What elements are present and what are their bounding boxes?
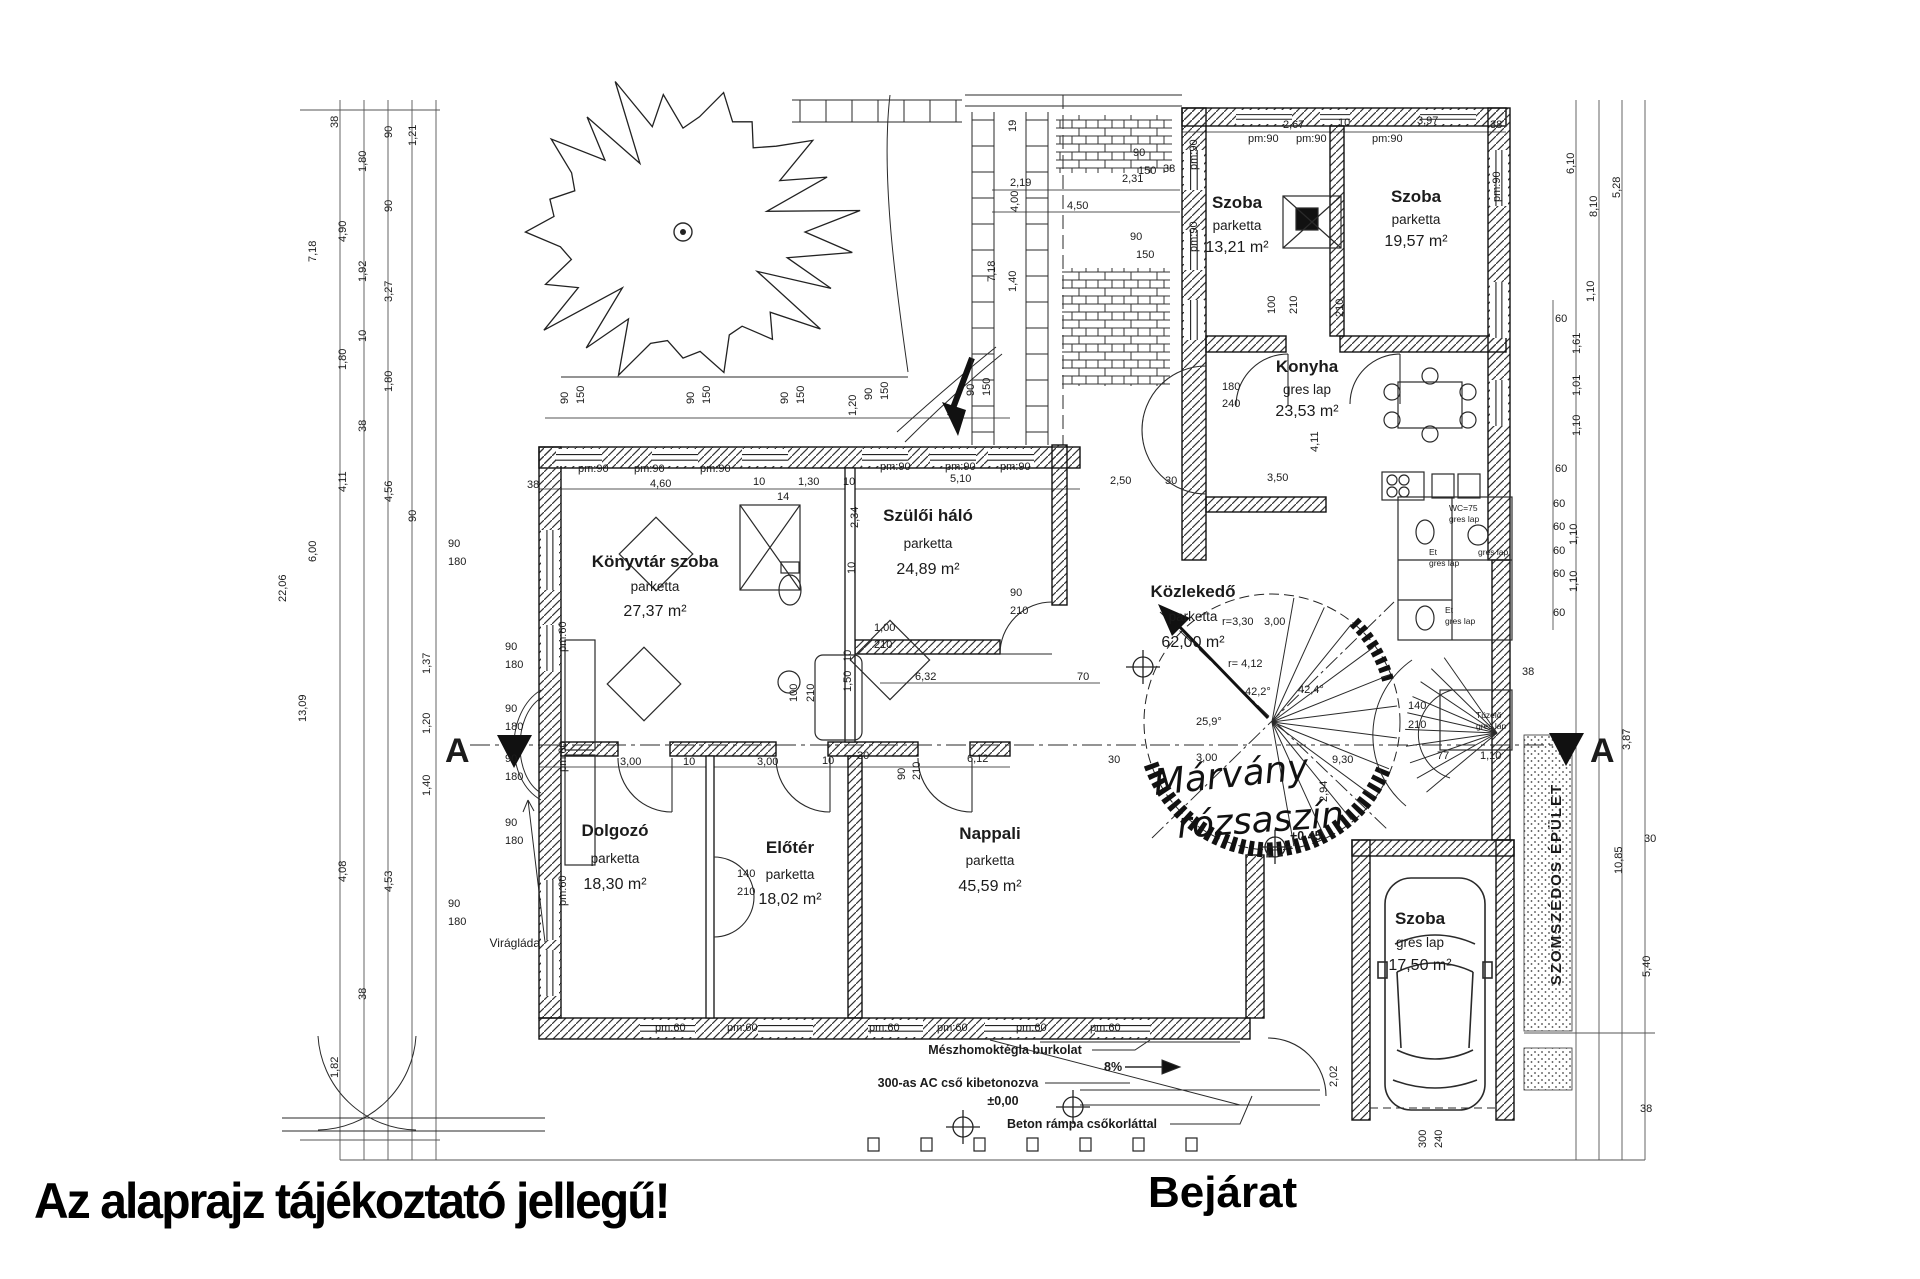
svg-text:Dolgozó: Dolgozó: [581, 821, 648, 840]
svg-text:90: 90: [448, 538, 460, 550]
svg-text:Virágláda: Virágláda: [490, 936, 541, 950]
annotation-zero-level: ±0,00: [987, 1094, 1018, 1108]
svg-text:1,80: 1,80: [337, 349, 349, 370]
svg-text:parketta: parketta: [631, 579, 680, 594]
room-label-garazs-szoba: Szoba gres lap 17,50 m²: [1388, 909, 1452, 974]
room-label-nappali: Nappali parketta 45,59 m²: [958, 824, 1022, 895]
floorplan-page: SZOMSZÉDOS ÉPÜLET A A Szoba parketta 13,…: [0, 0, 1920, 1279]
svg-text:1,10: 1,10: [1568, 571, 1580, 592]
svg-text:38: 38: [1522, 666, 1534, 678]
svg-text:3,00: 3,00: [1264, 616, 1285, 628]
svg-text:180: 180: [505, 771, 523, 783]
svg-text:r= 4,12: r= 4,12: [1228, 658, 1263, 670]
svg-text:pm:60: pm:60: [557, 621, 569, 652]
svg-text:300-as AC cső kibetonozva: 300-as AC cső kibetonozva: [878, 1076, 1040, 1090]
svg-text:Szoba: Szoba: [1395, 909, 1446, 928]
svg-text:30: 30: [1165, 475, 1177, 487]
svg-text:Szoba: Szoba: [1212, 193, 1263, 212]
svg-text:Nappali: Nappali: [959, 824, 1020, 843]
svg-text:pm:60: pm:60: [655, 1022, 686, 1034]
svg-text:30: 30: [857, 750, 869, 762]
room-label-eloter: Előtér parketta 18,02 m²: [758, 838, 822, 908]
svg-text:3,87: 3,87: [1621, 729, 1633, 750]
svg-text:Közlekedő: Közlekedő: [1150, 582, 1235, 601]
svg-text:pm:90: pm:90: [880, 461, 911, 473]
svg-text:pm:60: pm:60: [727, 1022, 758, 1034]
svg-text:2,67: 2,67: [1283, 119, 1304, 131]
svg-text:A: A: [445, 732, 470, 770]
svg-text:10: 10: [842, 650, 854, 662]
svg-text:5,28: 5,28: [1611, 177, 1623, 198]
svg-text:60: 60: [1555, 313, 1567, 325]
svg-text:90: 90: [448, 898, 460, 910]
svg-text:1,61: 1,61: [1571, 333, 1583, 354]
svg-text:210: 210: [1334, 299, 1346, 317]
svg-text:1,01: 1,01: [1571, 375, 1583, 396]
svg-text:90: 90: [965, 384, 977, 396]
svg-text:r=3,30: r=3,30: [1222, 616, 1254, 628]
svg-text:1,40: 1,40: [421, 775, 433, 796]
svg-text:parketta: parketta: [591, 851, 640, 866]
svg-text:60: 60: [1555, 463, 1567, 475]
svg-text:38: 38: [357, 420, 369, 432]
svg-text:3,00: 3,00: [620, 756, 641, 768]
svg-text:24,89 m²: 24,89 m²: [896, 561, 960, 578]
svg-text:90: 90: [559, 392, 571, 404]
svg-text:90: 90: [863, 388, 875, 400]
svg-text:7,18: 7,18: [986, 261, 998, 282]
annotation-burkolat: Mészhomoktégla burkolat: [928, 1040, 1150, 1057]
plan-disclaimer: Az alaprajz tájékoztató jellegű!: [34, 1172, 669, 1230]
svg-text:parketta: parketta: [904, 536, 953, 551]
svg-text:2,19: 2,19: [1010, 177, 1031, 189]
svg-text:pm:90: pm:90: [1296, 133, 1327, 145]
svg-text:4,90: 4,90: [337, 221, 349, 242]
tree: [525, 82, 860, 376]
svg-text:300: 300: [1417, 1130, 1429, 1148]
svg-text:Beton rámpa csőkorláttal: Beton rámpa csőkorláttal: [1007, 1117, 1157, 1131]
svg-text:38: 38: [1490, 119, 1502, 131]
svg-text:1,82: 1,82: [329, 1057, 341, 1078]
svg-text:60: 60: [1553, 568, 1565, 580]
svg-text:pm:60: pm:60: [869, 1022, 900, 1034]
svg-text:5,40: 5,40: [1641, 956, 1653, 977]
svg-text:77: 77: [1437, 750, 1449, 762]
svg-text:pm:90: pm:90: [1248, 133, 1279, 145]
svg-text:parketta: parketta: [966, 853, 1015, 868]
svg-text:62,00 m²: 62,00 m²: [1161, 634, 1225, 651]
section-marker-a-left: A: [445, 732, 532, 770]
svg-text:150: 150: [1136, 249, 1154, 261]
svg-text:parketta: parketta: [1169, 609, 1218, 624]
svg-text:10: 10: [846, 562, 858, 574]
site-boundary-curve: [887, 95, 908, 372]
svg-text:180: 180: [505, 835, 523, 847]
svg-text:150: 150: [981, 378, 993, 396]
svg-text:90: 90: [779, 392, 791, 404]
svg-text:38: 38: [357, 988, 369, 1000]
svg-text:45,59 m²: 45,59 m²: [958, 878, 1022, 895]
svg-text:18,30 m²: 18,30 m²: [583, 876, 647, 893]
svg-text:150: 150: [879, 382, 891, 400]
svg-text:90: 90: [407, 510, 419, 522]
svg-text:70: 70: [1077, 671, 1089, 683]
svg-text:210: 210: [1010, 605, 1028, 617]
svg-text:1,21: 1,21: [407, 125, 419, 146]
svg-text:pm:90: pm:90: [700, 463, 731, 475]
svg-text:1,20: 1,20: [421, 713, 433, 734]
room-label-szuloi-halo: Szülői háló parketta 24,89 m²: [883, 506, 973, 578]
svg-text:2,34: 2,34: [849, 507, 861, 528]
neighbor-building-label: SZOMSZÉDOS ÉPÜLET: [1548, 783, 1565, 985]
svg-text:Konyha: Konyha: [1276, 357, 1339, 376]
svg-text:25,9°: 25,9°: [1196, 716, 1222, 728]
svg-text:30: 30: [1108, 754, 1120, 766]
svg-text:240: 240: [1433, 1130, 1445, 1148]
svg-text:90: 90: [383, 200, 395, 212]
svg-text:90: 90: [505, 817, 517, 829]
svg-text:1,50: 1,50: [842, 671, 854, 692]
svg-text:4,11: 4,11: [337, 471, 349, 492]
svg-text:100: 100: [788, 684, 800, 702]
svg-text:Et: Et: [1445, 605, 1454, 615]
svg-text:pm:90: pm:90: [1372, 133, 1403, 145]
svg-text:3,00: 3,00: [757, 756, 778, 768]
svg-text:10: 10: [357, 330, 369, 342]
svg-text:A: A: [1590, 732, 1615, 770]
svg-text:pm:60: pm:60: [557, 741, 569, 772]
svg-text:30: 30: [1644, 833, 1656, 845]
svg-text:1,10: 1,10: [1568, 524, 1580, 545]
svg-text:38: 38: [329, 116, 341, 128]
svg-text:1,40: 1,40: [1007, 271, 1019, 292]
svg-text:10: 10: [1338, 117, 1350, 129]
svg-text:10: 10: [683, 756, 695, 768]
svg-text:210: 210: [737, 886, 755, 898]
room-label-konyha: Konyha gres lap 23,53 m²: [1275, 357, 1339, 420]
svg-text:210: 210: [911, 762, 923, 780]
svg-text:210: 210: [1288, 296, 1300, 314]
svg-text:Et: Et: [1429, 547, 1438, 557]
svg-text:Mészhomoktégla burkolat: Mészhomoktégla burkolat: [928, 1043, 1082, 1057]
svg-text:90: 90: [505, 641, 517, 653]
svg-text:240: 240: [1222, 398, 1240, 410]
svg-text:2,31: 2,31: [1122, 173, 1143, 185]
svg-text:90: 90: [1133, 147, 1145, 159]
svg-text:1,10: 1,10: [1571, 415, 1583, 436]
svg-text:gres lap: gres lap: [1449, 514, 1480, 524]
svg-text:1,92: 1,92: [357, 261, 369, 282]
svg-text:pm:90: pm:90: [1000, 461, 1031, 473]
svg-text:4,60: 4,60: [650, 478, 671, 490]
svg-text:6,10: 6,10: [1565, 153, 1577, 174]
svg-text:38: 38: [1640, 1103, 1652, 1115]
svg-text:180: 180: [448, 916, 466, 928]
svg-text:38: 38: [1163, 163, 1175, 175]
svg-text:2,94: 2,94: [1318, 781, 1330, 802]
annotation-ramp: Beton rámpa csőkorláttal: [1007, 1096, 1252, 1131]
svg-text:pm:60: pm:60: [937, 1022, 968, 1034]
room-label-szoba-13: Szoba parketta 13,21 m²: [1205, 193, 1269, 256]
svg-text:27,37 m²: 27,37 m²: [623, 603, 687, 620]
svg-text:1,80: 1,80: [357, 151, 369, 172]
svg-text:90: 90: [685, 392, 697, 404]
svg-text:pm:90: pm:90: [1188, 139, 1200, 170]
svg-text:pm:90: pm:90: [578, 463, 609, 475]
svg-text:19,57 m²: 19,57 m²: [1384, 233, 1448, 250]
svg-text:parketta: parketta: [1213, 218, 1262, 233]
svg-text:13,21 m²: 13,21 m²: [1205, 239, 1269, 256]
svg-text:WC=75: WC=75: [1449, 503, 1478, 513]
svg-text:gres lap: gres lap: [1396, 935, 1444, 950]
svg-text:90: 90: [505, 703, 517, 715]
svg-text:150: 150: [575, 386, 587, 404]
svg-text:90: 90: [896, 768, 908, 780]
room-label-szoba-19: Szoba parketta 19,57 m²: [1384, 187, 1448, 250]
svg-text:10: 10: [753, 476, 765, 488]
svg-text:pm:90: pm:90: [945, 461, 976, 473]
svg-text:13,09: 13,09: [297, 694, 309, 722]
svg-text:1,10: 1,10: [1585, 281, 1597, 302]
room-label-dolgozo: Dolgozó parketta 18,30 m²: [581, 821, 648, 893]
svg-text:4,50: 4,50: [1067, 200, 1088, 212]
svg-text:210: 210: [805, 684, 817, 702]
svg-text:10: 10: [822, 755, 834, 767]
svg-text:pm:90: pm:90: [634, 463, 665, 475]
svg-text:60: 60: [1553, 498, 1565, 510]
svg-text:1,80: 1,80: [383, 371, 395, 392]
svg-text:140: 140: [737, 868, 755, 880]
annotation-slope: 8%: [1104, 1060, 1122, 1074]
svg-text:60: 60: [1553, 521, 1565, 533]
svg-text:gres lap: gres lap: [1445, 616, 1476, 626]
svg-text:90: 90: [383, 126, 395, 138]
svg-text:parketta: parketta: [1392, 212, 1441, 227]
svg-text:210: 210: [874, 639, 892, 651]
svg-text:3,50: 3,50: [1267, 472, 1288, 484]
svg-text:Szülői háló: Szülői háló: [883, 506, 973, 525]
svg-text:4,00: 4,00: [1009, 191, 1021, 212]
upper-boundary: [965, 95, 1182, 106]
svg-text:19: 19: [1007, 120, 1019, 132]
svg-text:18,02 m²: 18,02 m²: [758, 891, 822, 908]
gate: [282, 1036, 545, 1131]
entrance-label: Bejárat: [1148, 1168, 1297, 1218]
annotation-ac-cso: 300-as AC cső kibetonozva: [878, 1076, 1130, 1090]
svg-text:4,08: 4,08: [337, 861, 349, 882]
svg-text:60: 60: [1553, 607, 1565, 619]
svg-text:pm:60: pm:60: [557, 875, 569, 906]
svg-text:7,18: 7,18: [307, 241, 319, 262]
svg-text:5,10: 5,10: [950, 473, 971, 485]
neighbor-building-area: [1524, 1048, 1572, 1090]
svg-text:gres lap: gres lap: [1478, 547, 1509, 557]
svg-text:42,2°: 42,2°: [1245, 686, 1271, 698]
svg-text:90: 90: [1010, 587, 1022, 599]
svg-text:gres lap: gres lap: [1476, 721, 1507, 731]
svg-text:3,97: 3,97: [1417, 115, 1438, 127]
svg-text:2,02: 2,02: [1328, 1066, 1340, 1087]
svg-text:140: 140: [1408, 700, 1426, 712]
svg-text:pm:60: pm:60: [1016, 1022, 1047, 1034]
svg-text:6,12: 6,12: [967, 753, 988, 765]
svg-text:42,4°: 42,4°: [1298, 684, 1324, 696]
svg-text:pm:60: pm:60: [1090, 1022, 1121, 1034]
entry-arrow-icon: [942, 358, 972, 436]
svg-text:4,53: 4,53: [383, 871, 395, 892]
svg-text:180: 180: [448, 556, 466, 568]
svg-text:150: 150: [795, 386, 807, 404]
svg-text:1,10: 1,10: [1480, 750, 1501, 762]
svg-text:60: 60: [1553, 545, 1565, 557]
svg-text:10,85: 10,85: [1613, 846, 1625, 874]
svg-text:210: 210: [1408, 719, 1426, 731]
dimension-labels: 38901,211,804,90901,923,277,18101,801,80…: [277, 115, 1656, 1148]
svg-text:23,53 m²: 23,53 m²: [1275, 403, 1339, 420]
svg-text:180: 180: [1222, 381, 1240, 393]
svg-text:gres lap: gres lap: [1283, 382, 1331, 397]
svg-text:90: 90: [1130, 231, 1142, 243]
svg-text:14: 14: [777, 491, 789, 503]
svg-text:4,56: 4,56: [383, 481, 395, 502]
svg-text:17,50 m²: 17,50 m²: [1388, 957, 1452, 974]
svg-text:150: 150: [701, 386, 713, 404]
svg-text:pm:90: pm:90: [1491, 171, 1503, 202]
svg-text:Könyvtár szoba: Könyvtár szoba: [592, 552, 719, 571]
room-label-konyvtar: Könyvtár szoba parketta 27,37 m²: [592, 552, 719, 620]
svg-text:38: 38: [527, 479, 539, 491]
svg-text:1,30: 1,30: [798, 476, 819, 488]
svg-text:2,50: 2,50: [1110, 475, 1131, 487]
svg-text:pm:90: pm:90: [1188, 221, 1200, 252]
svg-text:Tüzelő: Tüzelő: [1476, 710, 1502, 720]
svg-text:8,10: 8,10: [1588, 196, 1600, 217]
svg-text:3,27: 3,27: [383, 281, 395, 302]
svg-text:1,00: 1,00: [874, 622, 895, 634]
svg-text:1,37: 1,37: [421, 653, 433, 674]
floorplan-drawing: SZOMSZÉDOS ÉPÜLET A A Szoba parketta 13,…: [0, 0, 1920, 1279]
svg-text:90: 90: [505, 753, 517, 765]
svg-text:6,32: 6,32: [915, 671, 936, 683]
svg-text:Szoba: Szoba: [1391, 187, 1442, 206]
svg-text:gres lap: gres lap: [1429, 558, 1460, 568]
svg-text:180: 180: [505, 659, 523, 671]
annotation-viraglada: Virágláda: [490, 800, 545, 950]
svg-text:Előtér: Előtér: [766, 838, 815, 857]
svg-text:100: 100: [1266, 296, 1278, 314]
svg-text:9,30: 9,30: [1332, 754, 1353, 766]
svg-text:3,00: 3,00: [1196, 752, 1217, 764]
svg-text:4,11: 4,11: [1309, 431, 1321, 452]
fence-posts: [868, 1138, 1197, 1151]
svg-text:6,00: 6,00: [307, 541, 319, 562]
svg-text:Márvány: Márvány: [1152, 747, 1312, 804]
svg-text:10: 10: [843, 476, 855, 488]
svg-text:22,06: 22,06: [277, 574, 289, 602]
svg-text:parketta: parketta: [766, 867, 815, 882]
svg-text:180: 180: [505, 721, 523, 733]
svg-text:1,20: 1,20: [847, 395, 859, 416]
brick-area: [1062, 268, 1170, 386]
